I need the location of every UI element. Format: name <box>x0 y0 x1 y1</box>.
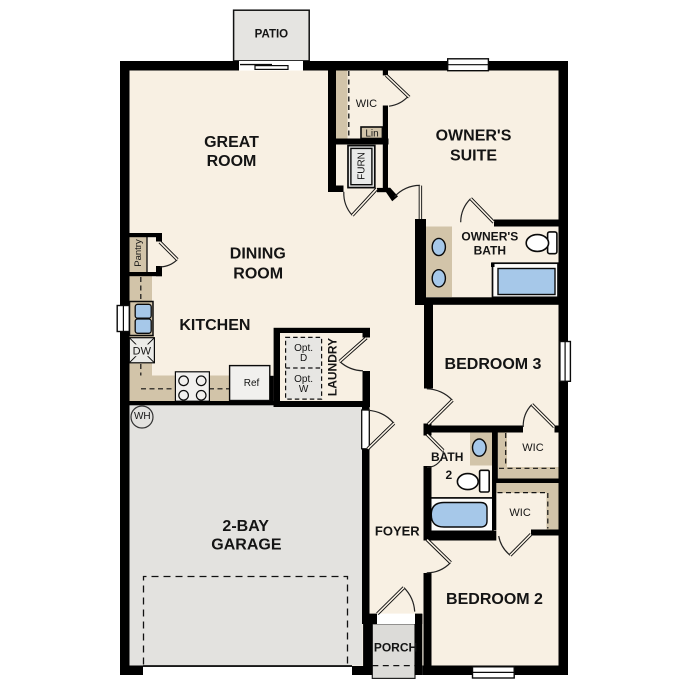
svg-text:DINING: DINING <box>230 246 286 263</box>
svg-text:KITCHEN: KITCHEN <box>179 317 250 334</box>
svg-text:Pantry: Pantry <box>133 239 144 267</box>
svg-text:WIC: WIC <box>522 442 543 454</box>
svg-text:PORCH: PORCH <box>374 640 417 654</box>
svg-text:2-BAY: 2-BAY <box>222 518 269 535</box>
svg-text:D: D <box>300 353 307 364</box>
svg-text:LAUNDRY: LAUNDRY <box>325 338 339 396</box>
svg-text:GARAGE: GARAGE <box>211 536 282 553</box>
svg-text:FOYER: FOYER <box>375 524 420 539</box>
svg-text:WIC: WIC <box>356 98 377 110</box>
svg-text:BEDROOM 2: BEDROOM 2 <box>446 591 543 608</box>
svg-text:OWNER'S: OWNER'S <box>436 128 512 145</box>
svg-text:ROOM: ROOM <box>207 153 257 170</box>
svg-text:GREAT: GREAT <box>204 134 259 151</box>
svg-text:ROOM: ROOM <box>233 265 283 282</box>
svg-text:2: 2 <box>446 468 453 482</box>
svg-text:Ref: Ref <box>244 378 260 389</box>
svg-text:OWNER'S: OWNER'S <box>461 229 518 243</box>
svg-text:BEDROOM 3: BEDROOM 3 <box>445 356 542 373</box>
svg-text:WH: WH <box>134 411 151 422</box>
svg-text:DW: DW <box>133 345 152 357</box>
svg-text:Lin: Lin <box>365 129 378 140</box>
svg-text:FURN: FURN <box>357 152 368 180</box>
svg-text:PATIO: PATIO <box>255 28 288 40</box>
svg-text:BATH: BATH <box>474 243 506 257</box>
svg-text:W: W <box>299 384 309 395</box>
svg-text:SUITE: SUITE <box>450 148 497 165</box>
svg-text:BATH: BATH <box>431 450 463 464</box>
svg-text:WIC: WIC <box>509 507 530 519</box>
